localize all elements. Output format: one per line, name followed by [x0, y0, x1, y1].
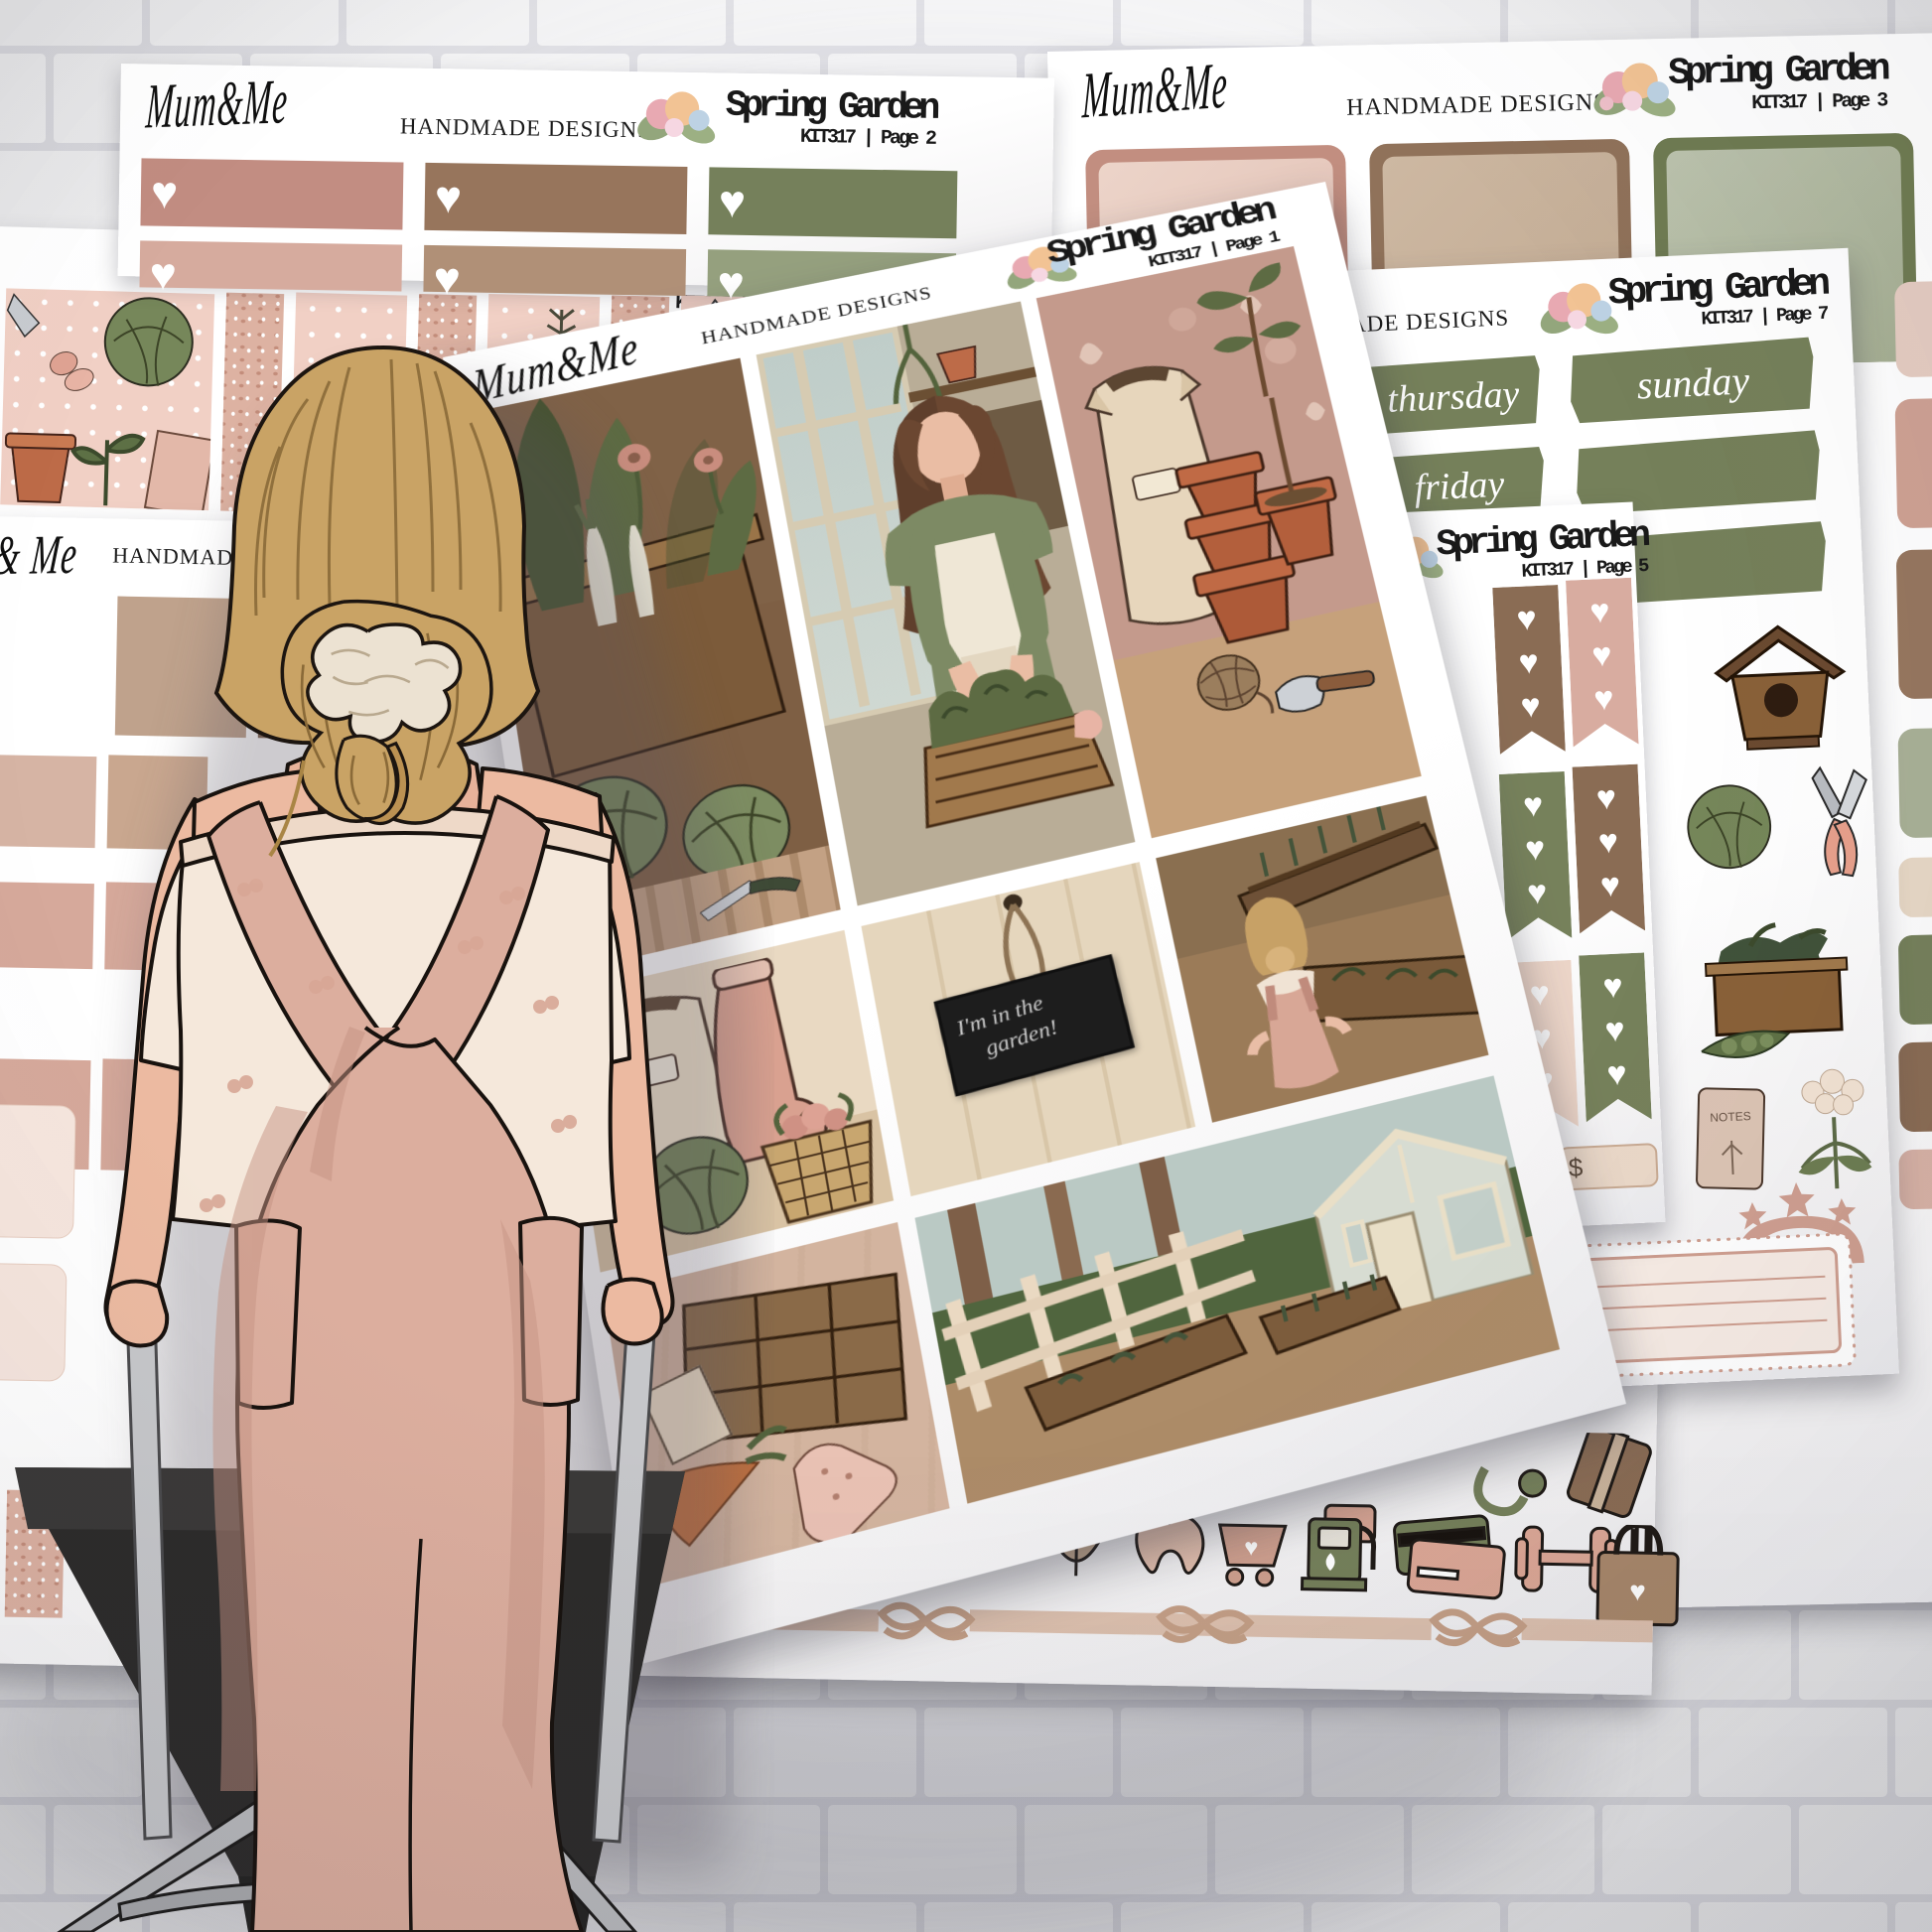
svg-text:♥: ♥ — [1244, 1535, 1259, 1562]
svg-text:♥: ♥ — [1602, 968, 1624, 1007]
svg-text:sunday: sunday — [1636, 357, 1750, 407]
svg-text:♥: ♥ — [1606, 1054, 1628, 1093]
svg-text:♥: ♥ — [1591, 636, 1613, 675]
svg-text:NOTES: NOTES — [1710, 1109, 1751, 1125]
svg-text:friday: friday — [1414, 464, 1506, 509]
svg-text:♥: ♥ — [1520, 687, 1542, 726]
svg-text:♥: ♥ — [1597, 823, 1619, 862]
svg-text:thursday: thursday — [1386, 373, 1520, 421]
svg-text:♥: ♥ — [1589, 593, 1611, 631]
svg-text:♥: ♥ — [1524, 830, 1546, 869]
svg-text:♥: ♥ — [1518, 643, 1540, 682]
svg-text:♥: ♥ — [1522, 786, 1544, 825]
svg-text:♥: ♥ — [1529, 975, 1551, 1014]
svg-text:♥: ♥ — [1604, 1011, 1626, 1049]
svg-text:♥: ♥ — [1593, 680, 1615, 719]
svg-text:♥: ♥ — [1516, 600, 1538, 638]
svg-text:♥: ♥ — [1599, 867, 1621, 905]
svg-text:♥: ♥ — [1595, 779, 1617, 818]
svg-text:♥: ♥ — [1526, 874, 1548, 912]
